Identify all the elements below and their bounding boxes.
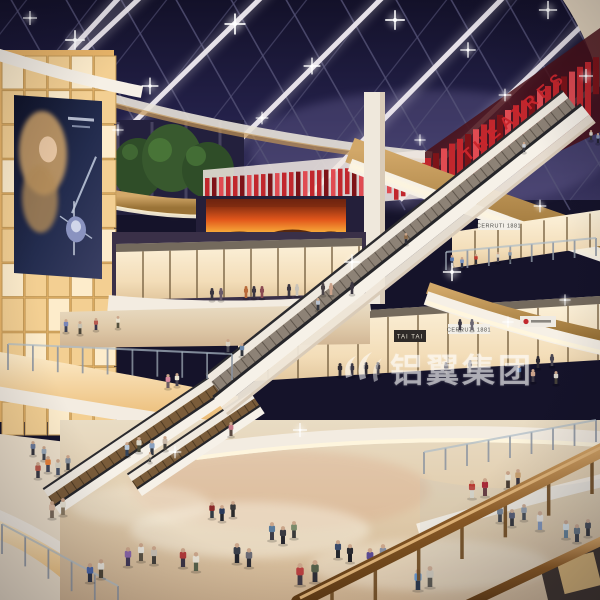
person-legs	[50, 510, 54, 518]
person-legs	[261, 292, 264, 298]
person-torso	[329, 285, 333, 289]
sparkle-core	[233, 22, 237, 26]
person-head	[229, 422, 232, 425]
person-legs	[471, 325, 473, 330]
person-head	[506, 471, 510, 475]
sparkle-core	[73, 38, 77, 42]
person-head	[471, 319, 474, 322]
person-torso	[470, 321, 474, 325]
person-head	[137, 437, 140, 440]
person-head	[532, 369, 535, 372]
person-head	[150, 440, 153, 443]
person-legs	[281, 535, 285, 544]
person-legs	[181, 558, 185, 567]
person-head	[288, 284, 291, 287]
person-legs	[241, 350, 244, 356]
person-legs	[95, 324, 98, 330]
person-head	[211, 288, 214, 291]
person-torso	[49, 504, 55, 510]
person-legs	[537, 362, 540, 368]
person-torso	[45, 459, 50, 465]
person-head	[95, 318, 98, 321]
sparkle-core	[299, 429, 302, 432]
person-legs	[351, 288, 354, 294]
sparkle-core	[393, 18, 397, 22]
person-legs	[61, 507, 65, 515]
person-head	[139, 543, 143, 547]
person-legs	[126, 557, 130, 566]
person-legs	[42, 453, 45, 460]
person-head	[220, 288, 223, 291]
person-head	[231, 501, 235, 505]
person-legs	[377, 369, 380, 375]
person-head	[79, 321, 82, 324]
person-legs	[270, 531, 274, 540]
person-head	[176, 373, 179, 376]
person-torso	[136, 440, 141, 445]
person-torso	[246, 552, 252, 559]
person-head	[99, 559, 103, 563]
sparkle-core	[174, 451, 177, 454]
person-head	[166, 374, 169, 377]
led-screen-top-shade	[206, 199, 346, 207]
person-head	[65, 319, 68, 322]
person-torso	[450, 257, 454, 261]
person-legs	[117, 322, 120, 328]
person-head	[336, 540, 340, 544]
person-legs	[235, 553, 239, 563]
person-torso	[536, 358, 540, 362]
person-legs	[475, 259, 477, 264]
person-legs	[36, 470, 40, 478]
person-legs	[523, 147, 525, 152]
person-legs	[166, 381, 169, 388]
person-head	[152, 546, 156, 550]
person-torso	[458, 321, 462, 325]
person-torso	[219, 508, 224, 514]
person-head	[469, 360, 472, 363]
sparkle-core	[585, 75, 588, 78]
sparkle-core	[310, 64, 313, 67]
person-legs	[351, 370, 354, 376]
person-legs	[79, 328, 82, 334]
person-legs	[211, 294, 214, 300]
person-head	[445, 362, 448, 365]
person-legs	[247, 558, 251, 567]
person-legs	[317, 304, 320, 310]
person-legs	[65, 326, 68, 332]
person-legs	[313, 571, 318, 582]
person-head	[270, 522, 274, 526]
sparkle-core	[507, 321, 509, 323]
person-legs	[227, 346, 230, 352]
person-head	[461, 257, 464, 260]
person-head	[459, 319, 462, 322]
person-torso	[240, 346, 244, 351]
person-torso	[260, 288, 264, 292]
person-legs	[149, 457, 151, 462]
red-fin	[338, 169, 343, 198]
person-head	[551, 354, 554, 357]
person-torso	[496, 254, 499, 258]
sparkle-core	[546, 8, 550, 12]
person-head	[88, 563, 92, 567]
person-torso	[505, 474, 511, 480]
person-torso	[125, 551, 131, 558]
person-torso	[78, 324, 82, 329]
person-head	[377, 362, 380, 365]
person-head	[227, 339, 230, 342]
person-head	[245, 286, 248, 289]
person-head	[597, 133, 599, 135]
person-torso	[230, 504, 235, 510]
person-torso	[148, 454, 151, 458]
sparkle-core	[564, 299, 566, 301]
person-torso	[596, 135, 599, 139]
person-torso	[280, 530, 286, 536]
person-legs	[551, 360, 554, 366]
person-head	[368, 548, 373, 553]
person-head	[470, 480, 474, 484]
person-torso	[350, 366, 354, 371]
person-torso	[350, 284, 354, 288]
person-torso	[321, 285, 325, 289]
person-torso	[64, 322, 68, 327]
person-head	[497, 252, 499, 254]
wall-panel	[25, 298, 46, 331]
person-head	[351, 363, 354, 366]
person-torso	[515, 472, 520, 478]
person-head	[516, 469, 520, 473]
person-head	[117, 316, 120, 319]
red-fin	[593, 57, 599, 94]
person-head	[36, 462, 40, 466]
sparkle-core	[466, 48, 469, 51]
person-legs	[365, 369, 368, 375]
person-head	[523, 142, 525, 144]
person-torso	[474, 256, 477, 260]
sparkle-core	[117, 129, 119, 131]
person-torso	[180, 552, 186, 559]
person-head	[61, 498, 65, 502]
person-legs	[31, 448, 34, 455]
person-torso	[364, 365, 368, 370]
mall-atrium-rendering: THEATRES	[0, 0, 600, 600]
red-fin	[296, 172, 301, 199]
person-head	[348, 544, 352, 548]
person-head	[125, 442, 128, 445]
person-legs	[139, 552, 143, 561]
person-head	[475, 254, 477, 256]
person-head	[241, 343, 244, 346]
person-legs	[506, 480, 510, 488]
sparkle-core	[350, 260, 353, 263]
person	[173, 373, 180, 389]
person-torso	[125, 445, 130, 450]
person-torso	[65, 458, 70, 463]
person-head	[66, 455, 69, 458]
person-head	[351, 282, 354, 285]
person-head	[483, 478, 487, 482]
person-legs	[461, 263, 463, 268]
person-legs	[518, 372, 521, 378]
person-torso	[42, 449, 47, 454]
person-torso	[226, 342, 230, 347]
sparkle-core	[450, 270, 454, 274]
person-legs	[330, 289, 333, 295]
person-head	[281, 526, 285, 530]
person-head	[220, 505, 224, 509]
person-head	[590, 130, 592, 132]
person-torso	[163, 439, 168, 444]
person-torso	[269, 526, 275, 532]
person-legs	[348, 553, 352, 562]
person-head	[317, 298, 320, 301]
person-torso	[468, 362, 472, 366]
person-torso	[517, 368, 521, 373]
person-torso	[508, 252, 511, 256]
person-legs	[99, 569, 103, 578]
person-head	[235, 543, 240, 548]
cerruti-upper-sign: CERRUTI 1881	[477, 224, 521, 230]
person-head	[42, 446, 45, 449]
person-legs	[231, 509, 235, 517]
person-torso	[295, 286, 299, 290]
person-torso	[229, 425, 234, 430]
person-legs	[163, 443, 166, 450]
red-fin	[345, 168, 350, 194]
person-torso	[252, 288, 256, 292]
person-torso	[166, 377, 171, 382]
person-head	[330, 283, 333, 286]
red-fin	[275, 173, 280, 199]
person-torso	[522, 144, 525, 148]
person-torso	[338, 366, 342, 371]
person-torso	[316, 300, 320, 304]
person-legs	[66, 463, 69, 470]
person-torso	[376, 365, 380, 370]
person-torso	[291, 524, 297, 530]
person-legs	[336, 549, 340, 558]
person-legs	[322, 289, 325, 295]
person-head	[31, 441, 34, 444]
person-legs	[194, 562, 198, 571]
person-legs	[152, 555, 156, 564]
person-legs	[137, 445, 140, 452]
person-head	[194, 552, 198, 556]
person-head	[247, 548, 251, 552]
person-torso	[404, 235, 408, 239]
person-torso	[444, 364, 448, 368]
person-head	[312, 560, 317, 565]
person-torso	[60, 501, 66, 507]
person-torso	[347, 548, 353, 554]
person-head	[405, 233, 408, 236]
person-torso	[94, 320, 98, 324]
person-head	[509, 250, 511, 252]
person-head	[46, 456, 50, 460]
person-torso	[234, 547, 241, 554]
person-head	[181, 548, 185, 552]
person-legs	[597, 138, 599, 143]
person-legs	[288, 290, 291, 296]
mall-atrium-scene: THEATRES	[0, 0, 600, 600]
person-torso	[335, 544, 341, 550]
person-torso	[175, 376, 179, 381]
person-head	[163, 436, 166, 439]
person-torso	[550, 356, 554, 360]
person-legs	[555, 378, 558, 384]
person-head	[126, 547, 130, 551]
person-head	[518, 365, 521, 368]
person-legs	[210, 510, 214, 518]
person-head	[210, 502, 214, 506]
perfume-ad-billboard	[14, 95, 102, 279]
person-torso	[460, 259, 464, 263]
person-head	[50, 501, 54, 505]
person-legs	[125, 449, 128, 456]
person-head	[451, 255, 454, 258]
person-legs	[220, 513, 224, 521]
wall-panel	[2, 298, 24, 331]
person-torso	[296, 567, 303, 575]
person-torso	[35, 465, 40, 471]
person-legs	[46, 464, 50, 472]
person-legs	[405, 239, 407, 244]
person-head	[297, 563, 302, 568]
person-legs	[416, 580, 421, 590]
person	[552, 371, 559, 387]
sparkle-core	[539, 205, 542, 208]
person-legs	[509, 255, 511, 260]
person-torso	[311, 564, 318, 572]
person-torso	[219, 290, 223, 294]
person-torso	[244, 288, 248, 292]
person-head	[253, 286, 256, 289]
sparkle-core	[148, 84, 151, 87]
person-torso	[98, 563, 104, 570]
person-legs	[229, 429, 232, 436]
person-legs	[88, 573, 92, 582]
person-head	[339, 363, 342, 366]
person-head	[292, 521, 296, 525]
person-torso	[138, 547, 144, 553]
person-legs	[220, 294, 223, 300]
sparkle-core	[261, 117, 264, 120]
person-legs	[298, 574, 303, 585]
person-head	[56, 459, 60, 463]
person	[515, 365, 522, 381]
person-torso	[193, 556, 199, 563]
person-torso	[482, 482, 488, 488]
wall-panel	[2, 402, 24, 435]
person-torso	[87, 567, 93, 574]
person-head	[537, 356, 540, 359]
person-torso	[554, 374, 558, 379]
person-torso	[209, 505, 214, 511]
person-head	[149, 452, 151, 454]
sparkle-core	[29, 17, 32, 20]
sparkle-core	[504, 94, 507, 97]
person-legs	[497, 257, 499, 262]
person-legs	[339, 370, 342, 376]
person-torso	[210, 290, 214, 294]
person-legs	[253, 292, 256, 298]
person-legs	[532, 376, 535, 382]
person-legs	[292, 530, 296, 538]
cerruti-mid-sign: CERRUTI 1881	[447, 328, 491, 334]
person-legs	[445, 368, 448, 374]
person-torso	[589, 132, 592, 136]
person-legs	[56, 467, 60, 475]
person-legs	[459, 325, 461, 330]
person-torso	[151, 550, 157, 556]
person	[529, 369, 536, 385]
person-head	[365, 362, 368, 365]
person-legs	[590, 135, 592, 140]
person-head	[322, 283, 325, 286]
red-fin	[317, 170, 322, 198]
person-legs	[176, 380, 179, 386]
taitai-sign: TAI TAI	[397, 335, 423, 341]
person-legs	[296, 290, 299, 296]
person-torso	[116, 318, 120, 322]
person-torso	[287, 286, 291, 290]
person-head	[296, 284, 299, 287]
sparkle-core	[419, 139, 421, 141]
red-logo-sign-text-mark	[531, 320, 551, 323]
person-head	[261, 286, 264, 289]
person-legs	[245, 292, 248, 298]
person-torso	[55, 462, 60, 468]
person-head	[555, 371, 558, 374]
person-head	[381, 544, 385, 548]
person-torso	[149, 443, 154, 448]
person-torso	[31, 444, 36, 449]
red-logo-icon	[523, 319, 528, 324]
person-legs	[469, 366, 472, 372]
person-torso	[531, 372, 535, 377]
